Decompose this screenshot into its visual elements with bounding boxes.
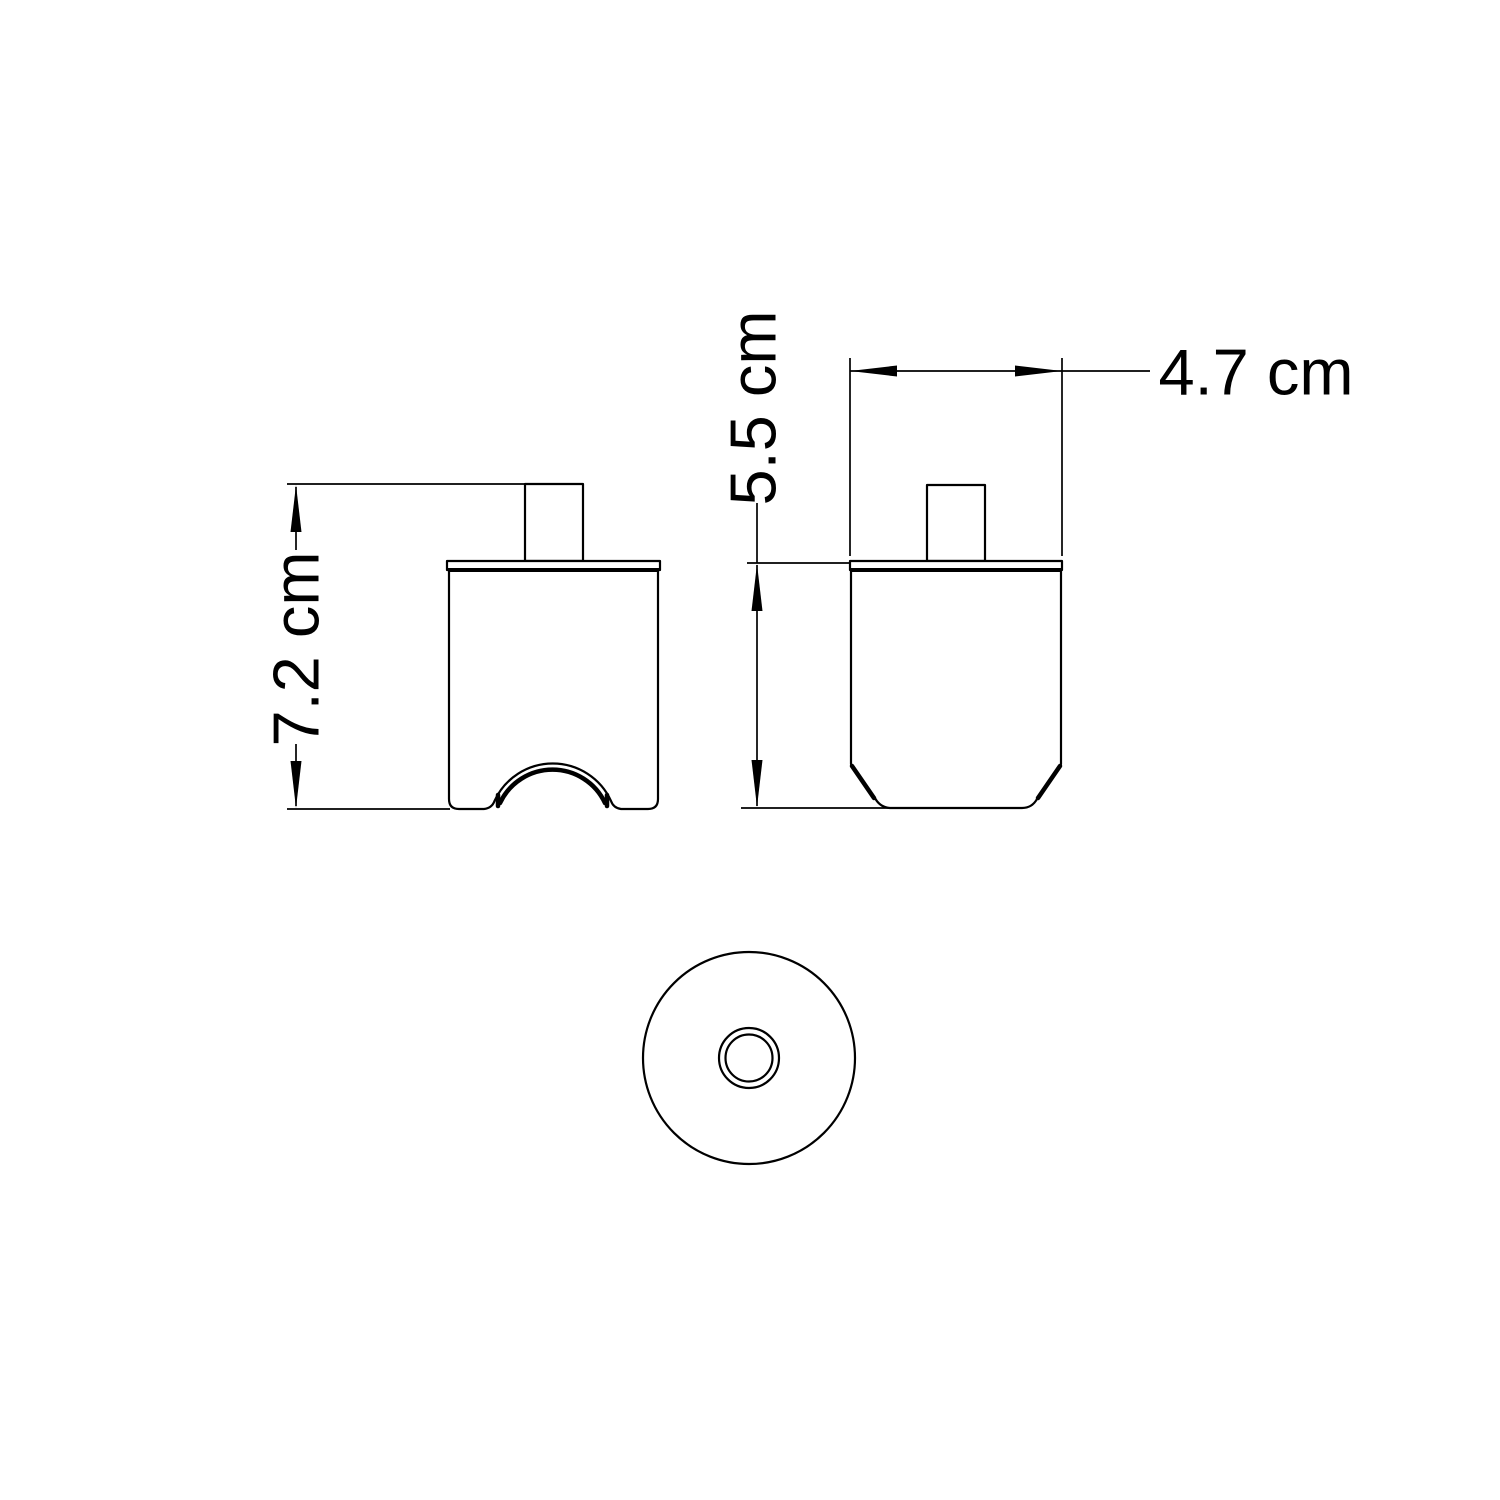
front-view bbox=[447, 484, 660, 809]
side-view bbox=[850, 485, 1062, 808]
front-height-label: 7.2 cm bbox=[260, 551, 333, 746]
front-view-body-outline bbox=[449, 571, 658, 809]
bottom-view-hole-inner-ring bbox=[726, 1035, 773, 1082]
arrow-up-icon bbox=[291, 485, 302, 532]
bottom-view-outer-circle bbox=[643, 952, 855, 1164]
side-view-chamfer-left bbox=[852, 766, 874, 798]
bottom-view-hole-outer-ring bbox=[719, 1028, 779, 1088]
front-view-stem bbox=[525, 484, 583, 561]
technical-drawing-page: 7.2 cm 5.5 cm 4.7 cm bbox=[0, 0, 1500, 1500]
arrow-down-icon bbox=[291, 761, 302, 808]
side-height-label: 5.5 cm bbox=[717, 310, 790, 505]
arrow-left-icon bbox=[850, 366, 897, 377]
arrow-up-icon bbox=[752, 564, 763, 611]
bottom-view bbox=[643, 952, 855, 1164]
dimension-side-width: 4.7 cm bbox=[850, 336, 1354, 557]
dimension-drawing-canvas: 7.2 cm 5.5 cm 4.7 cm bbox=[0, 0, 1500, 1500]
side-view-stem bbox=[927, 485, 985, 561]
dimension-side-height: 5.5 cm bbox=[717, 310, 891, 808]
side-view-body-outline bbox=[851, 571, 1061, 808]
side-view-chamfer-right bbox=[1038, 766, 1060, 798]
arrow-down-icon bbox=[752, 760, 763, 807]
side-width-label: 4.7 cm bbox=[1158, 336, 1353, 409]
arrow-right-icon bbox=[1015, 366, 1062, 377]
dimension-front-height: 7.2 cm bbox=[260, 484, 526, 809]
